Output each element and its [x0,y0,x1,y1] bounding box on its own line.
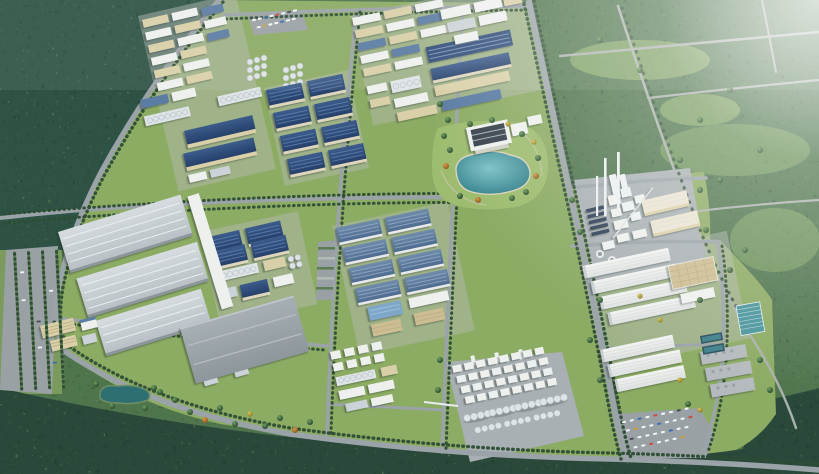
water-features [100,386,150,404]
industrial-park-aerial-render: Aerial bird's-eye 3D rendering of a larg… [0,0,819,474]
panel-field [736,302,765,336]
scene-svg: Aerial bird's-eye 3D rendering of a larg… [0,0,819,474]
lake [456,151,530,194]
retention-pond [100,386,150,404]
